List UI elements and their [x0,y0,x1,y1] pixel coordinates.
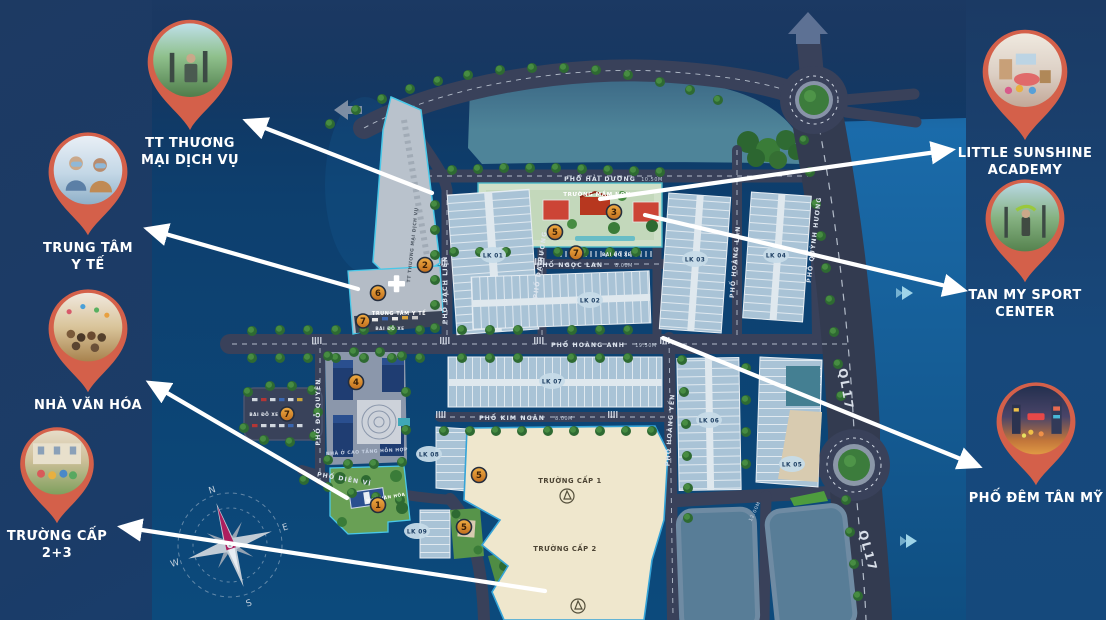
callout-pin-little-sunshine: LITTLE SUNSHINE ACADEMY [940,26,1106,180]
callout-pin-trung-tam-y-te: TRUNG TÂM Y TẾ [3,129,173,275]
map-pin-icon [979,26,1071,142]
map-pin-icon [17,424,97,525]
block-lk08 [436,427,468,491]
map-pin-icon [982,176,1068,284]
block-lk02 [471,271,651,329]
label-school-2: TRƯỜNG CẤP 2 [533,543,596,553]
block-label-lk05: LK 05 [782,463,802,469]
callout-label-trung-tam-y-te: TRUNG TÂM Y TẾ [43,241,133,275]
street-width-hai-duong: 10.50M [641,177,662,183]
callout-label-little-sunshine: LITTLE SUNSHINE ACADEMY [958,146,1092,180]
block-label-lk09: LK 09 [407,530,427,536]
block-label-lk06: LK 06 [699,419,719,425]
block-label-lk01: LK 01 [483,254,503,260]
masterplan-infographic: PHỐ HẢI DƯƠNG 10.50M PHỐ NGỌC LAN 8.00M … [0,0,1106,620]
callout-label-truong-cap: TRƯỜNG CẤP 2+3 [7,529,107,563]
marker-3: 3 [611,208,617,218]
marker-5a: 5 [552,228,558,238]
marker-1: 1 [375,501,381,511]
marker-7a: 7 [573,249,579,259]
marker-2: 2 [422,261,428,271]
callout-pin-truong-cap: TRƯỜNG CẤP 2+3 [0,424,142,563]
map-pin-icon [45,286,131,394]
map-pin-icon [45,129,131,237]
street-width-hoang-anh: 19.50M [635,343,656,349]
block-label-lk02: LK 02 [580,299,600,305]
marker-4: 4 [353,378,359,388]
marker-7b: 7 [360,317,366,327]
map-pin-icon [144,16,236,132]
roundabout-north [780,66,848,134]
block-label-lk07: LK 07 [542,380,562,386]
street-width-kim-ngan: 8.00M [555,416,573,422]
callout-pin-pho-dem: PHỐ ĐÊM TÂN MỸ [951,379,1106,508]
callout-pin-nha-van-hoa: NHÀ VĂN HÓA [3,286,173,415]
street-width-ngoc-lan: 8.00M [615,263,633,269]
block-label-lk08: LK 08 [419,453,439,459]
marker-5c: 5 [461,523,467,533]
callout-label-pho-dem: PHỐ ĐÊM TÂN MỸ [969,491,1104,508]
callout-label-tan-my-sport: TAN MY SPORT CENTER [968,288,1081,322]
marker-6: 6 [375,289,381,299]
callout-label-nha-van-hoa: NHÀ VĂN HÓA [34,398,142,415]
callout-pin-tan-my-sport: TAN MY SPORT CENTER [940,176,1106,322]
block-label-lk04: LK 04 [766,254,786,260]
map-pin-icon [993,379,1079,487]
marker-7c: 7 [284,410,290,420]
marker-5b: 5 [476,471,482,481]
label-medical-center: TRUNG TÂM Y TẾ [372,309,426,317]
label-school-1: TRƯỜNG CẤP 1 [538,475,601,485]
roundabout-south [818,429,890,501]
block-label-lk03: LK 03 [685,258,705,264]
